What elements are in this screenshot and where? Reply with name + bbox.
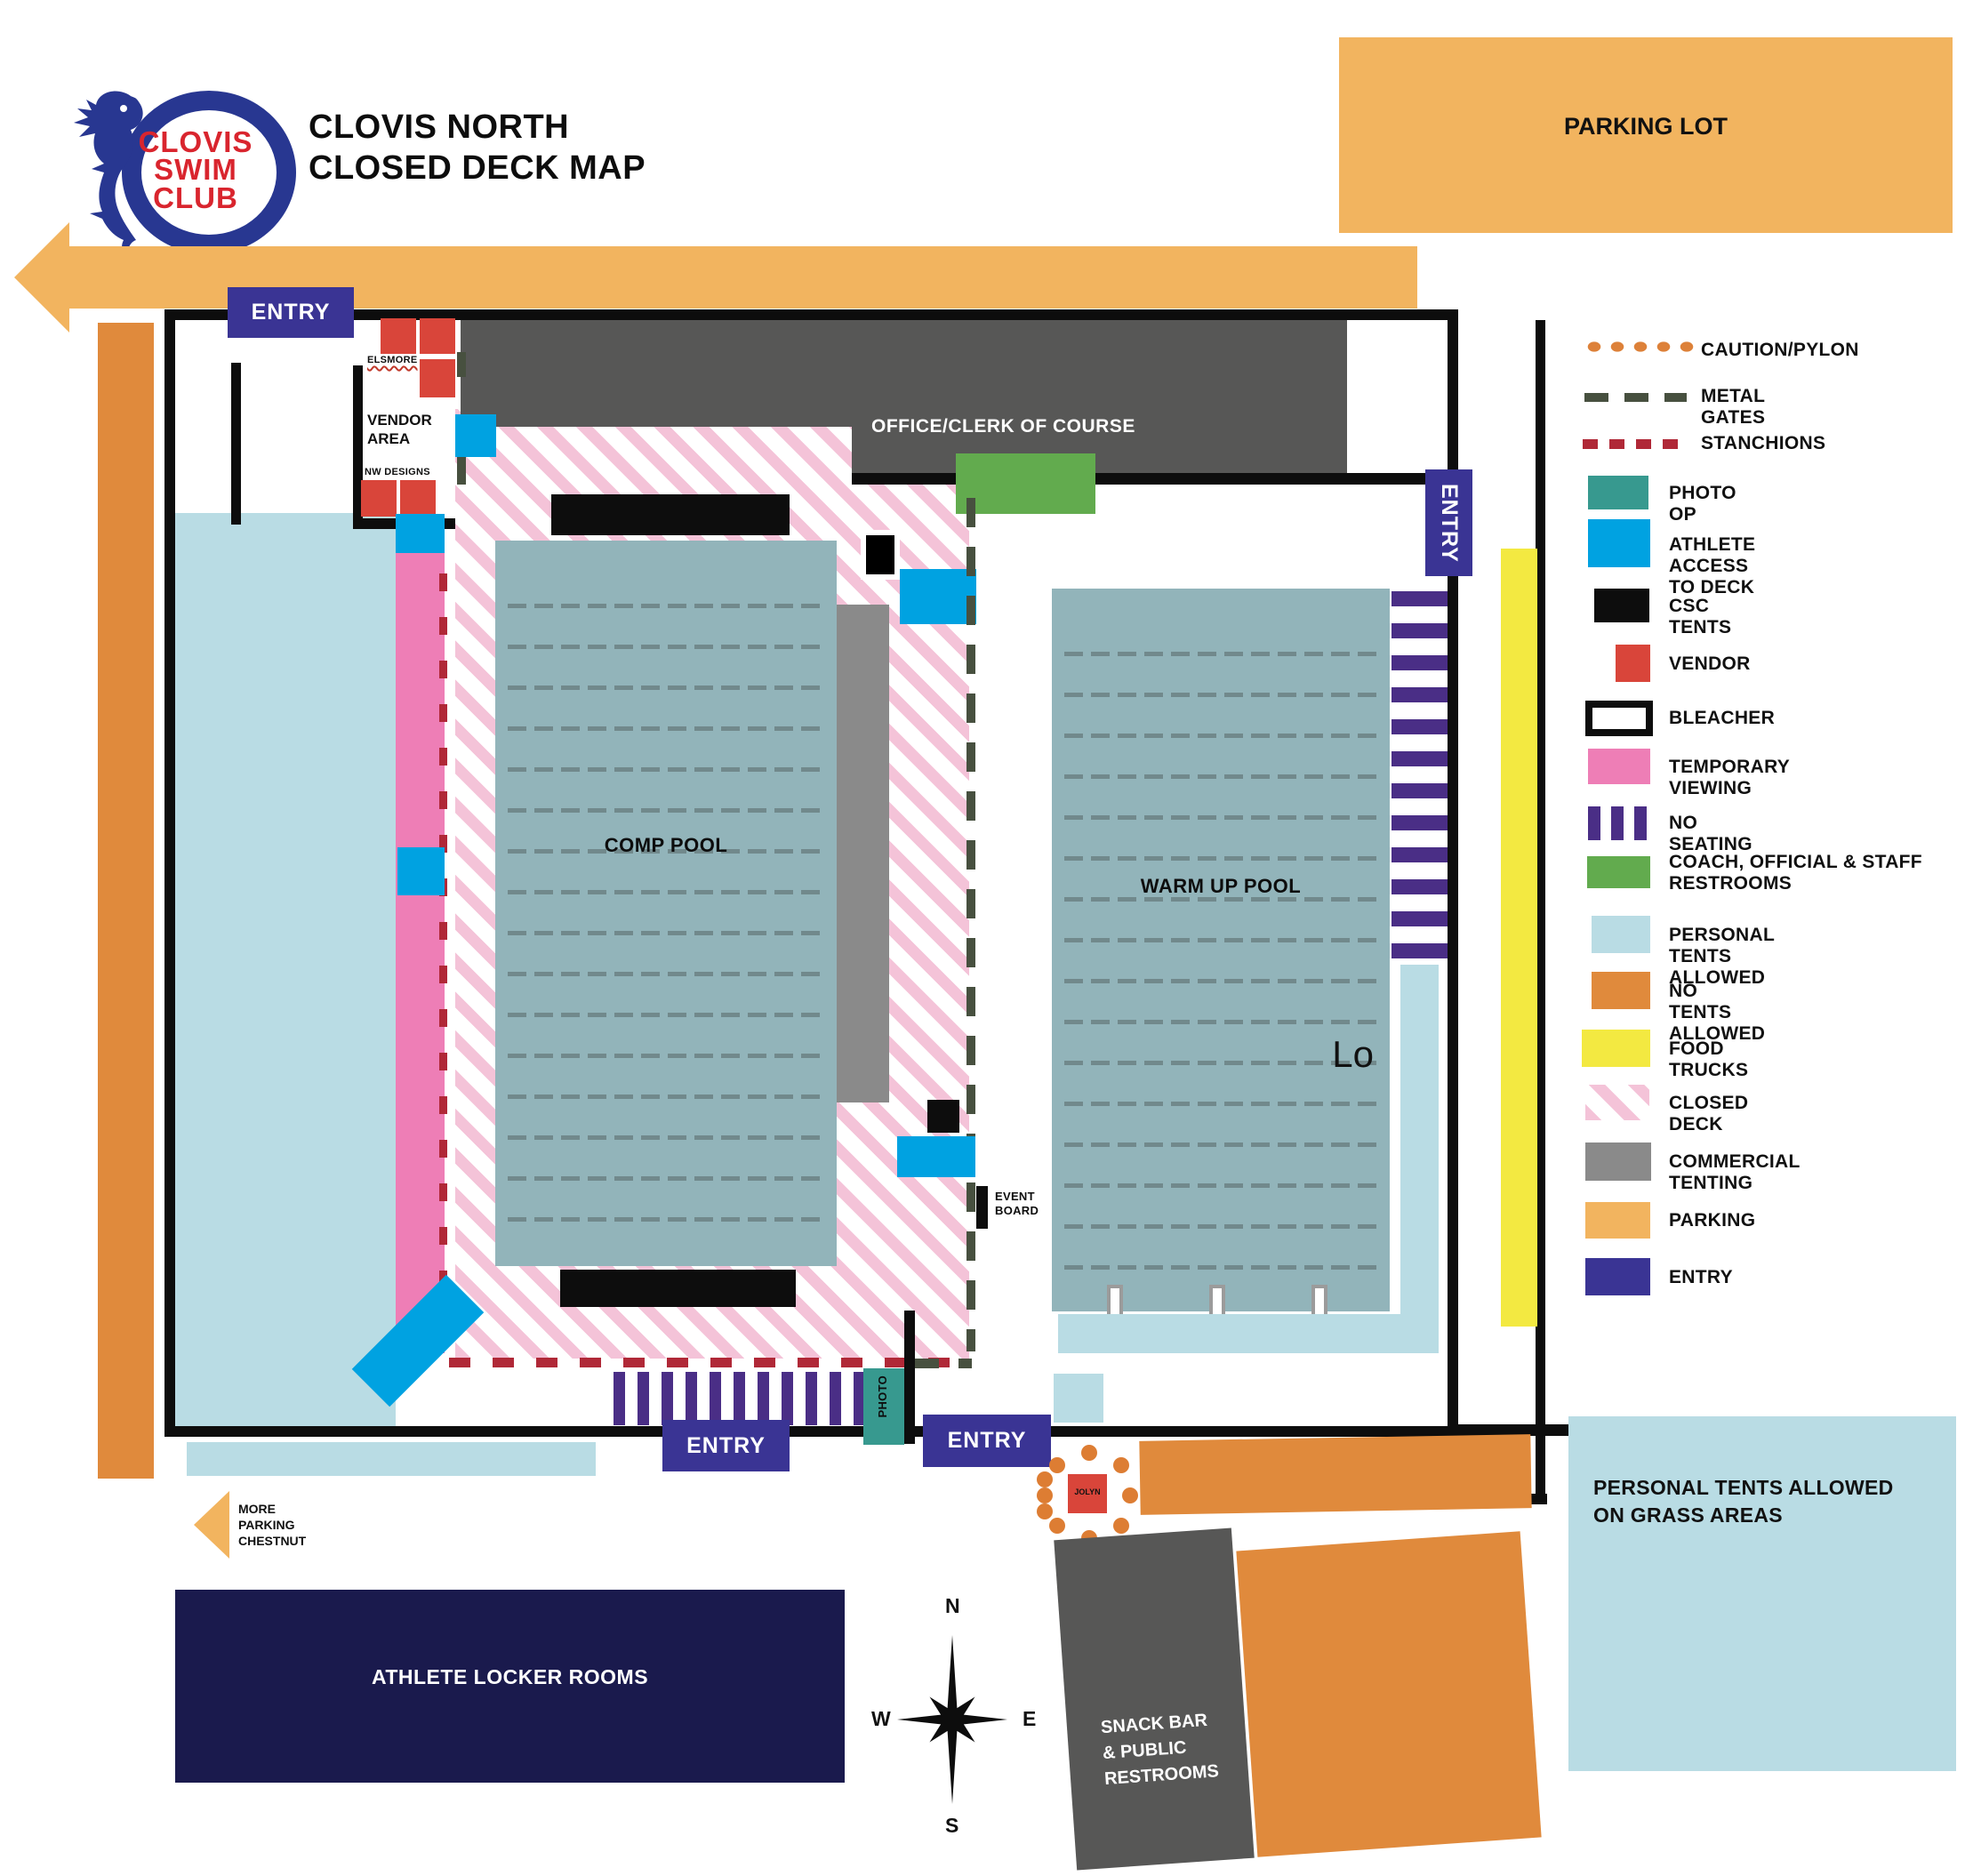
legend-swatch-food-trucks [1582,1030,1650,1067]
parking-lot-area: PARKING LOT [1339,37,1953,233]
more-parking-label: MORE PARKING CHESTNUT [238,1501,306,1550]
warm-up-pool-label: WARM UP POOL [1052,875,1390,898]
parking-lot-label: PARKING LOT [1339,113,1953,140]
elsmore-label: ELSMORE [367,355,418,365]
commercial-tenting-bar [837,605,889,1102]
vendor-tent [400,480,436,517]
athlete-access-rect-lower [897,1136,975,1177]
no-tents-grass-block [1236,1531,1541,1856]
title-line-1: CLOVIS NORTH [309,107,646,148]
comp-pool-lane-lines [508,567,824,1254]
snack-bar-public-restrooms: SNACK BAR & PUBLIC RESTROOMS [1054,1527,1254,1870]
photo-op-label: PHOTO [876,1375,889,1418]
legend-label-parking: PARKING [1669,1210,1755,1231]
grass-line1: PERSONAL TENTS ALLOWED [1593,1474,1894,1502]
vendor-area-line2: AREA [367,429,432,448]
event-board-line2: BOARD [995,1204,1039,1218]
stanchion-line-vertical [439,573,447,1356]
legend-label-vendor: VENDOR [1669,653,1751,675]
compass-w-label: W [871,1707,891,1731]
entry-right-label: ENTRY [1436,484,1462,563]
more-parking-arrow-icon [194,1491,229,1559]
closed-deck-map-page: CLOVIS SWIM CLUB CLOVIS NORTH CLOSED DEC… [0,0,1981,1876]
jolyn-label: JOLYN [1068,1487,1107,1496]
legend-swatch-bleacher [1585,701,1653,736]
warm-up-pool: WARM UP POOL Lo [1052,589,1390,1311]
legend-swatch-athlete-access [1588,519,1650,567]
athlete-access-square-top [455,414,496,457]
legend-label-photo-op: PHOTO OP [1669,483,1736,525]
legend-label-no-seating: NO SEATING [1669,813,1752,855]
more-parking-line2: PARKING [238,1517,306,1533]
legend-swatch-stanchions [1583,439,1689,449]
clovis-swim-club-logo: CLOVIS SWIM CLUB [76,87,298,261]
legend-swatch-closed-deck [1585,1085,1649,1120]
legend-label-athlete-access: ATHLETE ACCESS TO DECK [1669,534,1755,598]
entry-bottom-left-label: ENTRY [686,1433,766,1459]
food-trucks-strip [1501,549,1537,1327]
compass-e-label: E [1023,1707,1036,1731]
athlete-access-rect-mid [900,569,976,624]
personal-tents-small-rect [1054,1374,1103,1423]
legend-swatch-entry [1585,1258,1650,1295]
csc-tent-square-lower [927,1100,959,1133]
comp-pool-label: COMP POOL [495,834,837,857]
grass-area-label: PERSONAL TENTS ALLOWED ON GRASS AREAS [1593,1474,1894,1529]
compass-n-label: N [945,1594,960,1618]
legend-label-closed-deck: CLOSED DECK [1669,1093,1748,1135]
personal-tents-right-strip [1400,965,1439,1353]
personal-tents-bottom-strip [1058,1314,1439,1353]
legend-swatch-no-seating [1588,806,1647,840]
vendor-tent [361,480,397,517]
temporary-viewing-strip [396,526,445,1353]
event-board-label: EVENT BOARD [995,1190,1039,1219]
legend-swatch-photo-op [1588,476,1648,509]
legend-swatch-metal-gates [1584,393,1687,402]
legend-swatch-no-tents [1592,972,1650,1009]
legend-swatch-csc-tents [1594,589,1649,622]
logo-word-swim: SWIM [138,156,253,183]
csc-tent-bar-top [551,494,790,535]
stanchion-line-bottom [449,1358,969,1367]
csc-tent-bar-bottom [560,1270,796,1307]
legend-swatch-vendor [1616,645,1650,682]
grass-line2: ON GRASS AREAS [1593,1502,1894,1529]
office-bottom-wall [852,473,1428,485]
parking-arrow-icon [14,222,69,333]
csc-tent-square [861,530,900,580]
compass-s-label: S [945,1814,958,1838]
entry-top-label: ENTRY [252,300,331,325]
more-parking-line3: CHESTNUT [238,1533,306,1549]
more-parking-line1: MORE [238,1501,306,1517]
legend-swatch-commercial-tenting [1585,1142,1651,1181]
comp-pool: COMP POOL [495,541,837,1266]
vendor-tent [420,318,455,354]
legend-label-metal-gates: METAL GATES [1701,386,1765,429]
no-tents-left-strip [98,323,154,1479]
legend-label-caution-pylon: CAUTION/PYLON [1701,340,1859,361]
legend-swatch-personal-tents [1592,916,1650,953]
vendor-area-line1: VENDOR [367,411,432,429]
athlete-access-square-2 [397,847,445,895]
personal-tents-left-area [175,513,396,1426]
compass-rose-icon [890,1631,1015,1808]
entry-badge-top: ENTRY [228,287,354,338]
logo-word-clovis: CLOVIS [138,128,253,156]
legend-label-temporary-viewing: TEMPORARY VIEWING [1669,757,1790,799]
legend-label-food-trucks: FOOD TRUCKS [1669,1038,1748,1081]
metal-gates-line [966,498,975,1351]
snack-bar-label: SNACK BAR & PUBLIC RESTROOMS [1100,1707,1220,1792]
legend-label-csc-tents: CSC TENTS [1669,596,1731,638]
wall-photo-east [904,1311,915,1444]
legend-label-entry: ENTRY [1669,1267,1733,1288]
personal-tents-grass-area: PERSONAL TENTS ALLOWED ON GRASS AREAS [1568,1416,1956,1771]
logo-word-club: CLUB [138,184,253,212]
metal-gate-vendor-1 [457,352,466,377]
athlete-locker-rooms: ATHLETE LOCKER ROOMS [175,1590,845,1783]
legend-label-commercial-tenting: COMMERCIAL TENTING [1669,1151,1800,1194]
event-board-marker [976,1186,988,1229]
coach-official-staff-restrooms [956,453,1095,514]
legend-swatch-temporary-viewing [1588,749,1650,784]
commercial-tenting-top [461,320,852,427]
vendor-tent [420,359,455,397]
athlete-access-square-1 [396,514,445,553]
no-seating-right [1392,591,1448,965]
metal-gate-vendor-2 [457,455,466,495]
entry-bottom-right-label: ENTRY [948,1428,1027,1454]
metal-gates-bottom [910,1359,972,1368]
lo-label: Lo [1332,1033,1374,1076]
title-line-2: CLOSED DECK MAP [309,148,646,188]
nw-designs-label: NW DESIGNS [365,467,430,477]
entry-badge-right: ENTRY [1425,469,1472,576]
no-tents-band [1139,1434,1531,1515]
legend-swatch-parking [1585,1202,1650,1239]
vendor-area-label: VENDOR AREA [367,411,432,449]
legend-label-stanchions: STANCHIONS [1701,433,1825,454]
office-clerk-label: OFFICE/CLERK OF COURSE [871,416,1351,437]
legend-swatch-caution-pylon [1585,341,1694,354]
wall-a [231,363,241,525]
page-title: CLOVIS NORTH CLOSED DECK MAP [309,107,646,189]
athlete-locker-rooms-label: ATHLETE LOCKER ROOMS [175,1665,845,1689]
legend-label-personal-tents: PERSONAL TENTS ALLOWED [1669,925,1775,989]
jolyn-vendor-tent: JOLYN [1068,1474,1107,1513]
no-seating-bottom [614,1372,867,1425]
entry-badge-bottom-left: ENTRY [662,1420,790,1471]
office-clerk-of-course-area [852,320,1347,485]
photo-op-area: PHOTO [863,1368,904,1445]
legend-label-coach-restrooms: COACH, OFFICIAL & STAFF RESTROOMS [1669,852,1927,894]
personal-tents-outside-strip [187,1442,596,1476]
legend-swatch-coach-restrooms [1587,856,1650,888]
legend-label-bleacher: BLEACHER [1669,708,1775,729]
warm-up-pool-lane-lines [1064,615,1377,1299]
legend-label-no-tents: NO TENTS ALLOWED [1669,981,1765,1045]
entry-badge-bottom-right: ENTRY [923,1415,1051,1467]
vendor-tent [381,318,416,354]
event-board-line1: EVENT [995,1190,1039,1204]
